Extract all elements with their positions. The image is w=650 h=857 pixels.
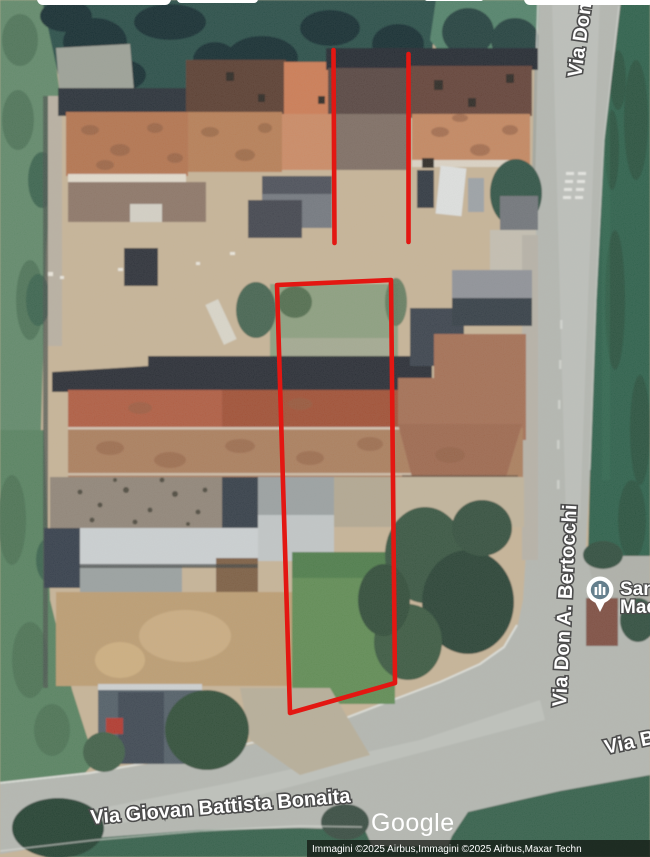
svg-text:Google: Google — [371, 809, 455, 837]
svg-text:Immagini ©2025 Airbus,Immagini: Immagini ©2025 Airbus,Immagini ©2025 Air… — [312, 844, 582, 855]
svg-text:Mac: Mac — [620, 597, 650, 618]
